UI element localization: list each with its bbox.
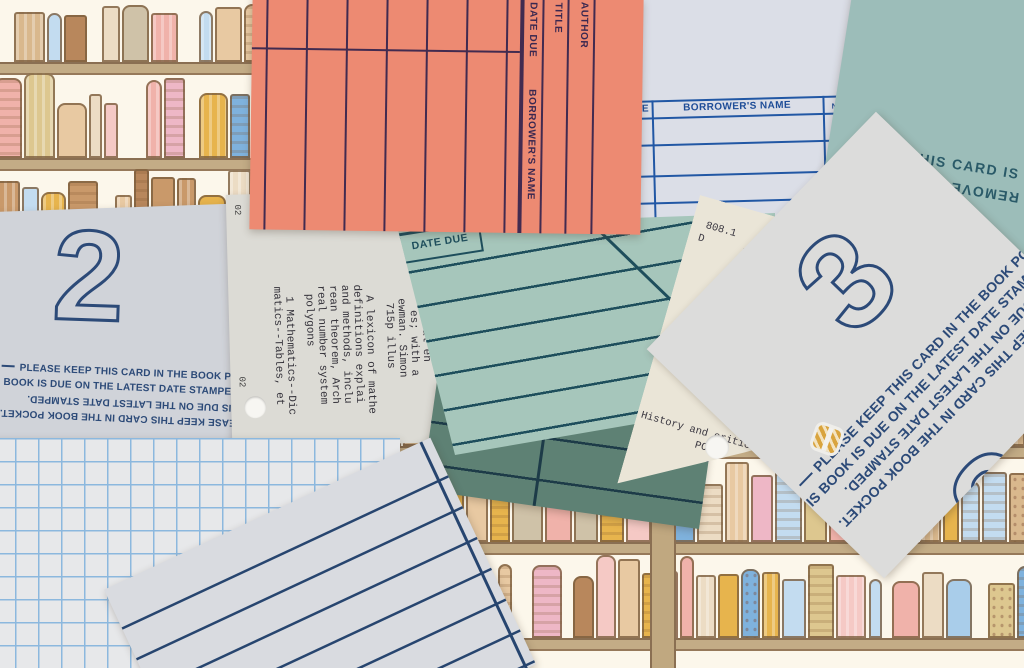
book-spine (762, 572, 780, 638)
punch-hole (705, 435, 729, 459)
book-spine (680, 556, 693, 638)
book-spine (869, 579, 883, 638)
rule-line (539, 0, 544, 233)
book-spine (57, 103, 87, 158)
book-spine (164, 78, 185, 158)
rule-line (423, 0, 428, 232)
edge-accession-number: 02 (232, 204, 242, 215)
punch-hole (244, 396, 267, 419)
library-card-collage: DATE DUE BORROWER'S NAME ROOM NUMBER THI… (0, 0, 1024, 668)
book-spine (718, 574, 739, 638)
call-letter: D (696, 232, 705, 245)
book-spine (151, 13, 178, 62)
rule-line (463, 0, 468, 232)
book-spine (741, 569, 760, 638)
book-spine (982, 472, 1008, 542)
book-spine (725, 462, 749, 542)
numeral-2: 2 (51, 212, 127, 342)
book-spine (1009, 473, 1024, 542)
salmon-due-slip: DATE DUE BORROWER'S NAME TITLE AUTHOR (249, 0, 643, 235)
book-spine (573, 576, 594, 638)
book-spine (532, 565, 562, 638)
book-spine (618, 559, 640, 638)
book-spine (102, 6, 120, 62)
book-spine (1017, 566, 1024, 638)
book-spine (89, 94, 102, 158)
rule-line (564, 0, 569, 234)
book-spine (988, 583, 1016, 638)
header-divider (517, 0, 524, 233)
rule-dash (799, 472, 813, 486)
rule-line (303, 0, 308, 230)
edge-accession-number: 02 (236, 376, 246, 387)
book-spine (230, 94, 250, 158)
book-spine (892, 581, 919, 638)
book-spine (808, 564, 834, 638)
book-spine (922, 572, 944, 638)
numeral-3: 3 (771, 207, 920, 355)
book-spine (946, 579, 972, 638)
rule-line (263, 0, 268, 229)
book-spine (64, 15, 88, 62)
call-number: 808.1 (704, 220, 738, 240)
book-spine (14, 12, 45, 62)
rule-line (383, 0, 388, 231)
rule-dash (2, 365, 15, 368)
rule-line (343, 0, 348, 231)
book-spine (0, 78, 22, 158)
rule-line (590, 0, 595, 234)
book-spine (696, 575, 716, 638)
book-spine (47, 13, 61, 62)
book-spine (215, 7, 242, 62)
book-spine (596, 555, 616, 638)
author-label: AUTHOR (578, 2, 590, 49)
book-spine (751, 475, 773, 542)
book-pocket-card-2: 2 PLEASE KEEP THIS CARD IN THE BOOK POCK… (0, 204, 239, 461)
title-label: TITLE (552, 2, 563, 33)
date-due-label: DATE DUE (527, 2, 539, 57)
borrowers-name-label: BORROWER'S NAME (525, 89, 538, 200)
book-spine (199, 11, 212, 62)
book-spine (836, 575, 867, 638)
rule-line (503, 0, 508, 233)
book-spine (24, 73, 55, 158)
book-spine (146, 80, 162, 158)
book-spine (122, 5, 149, 62)
book-spine (104, 103, 118, 158)
book-spine (199, 93, 228, 158)
book-spine (782, 579, 806, 638)
